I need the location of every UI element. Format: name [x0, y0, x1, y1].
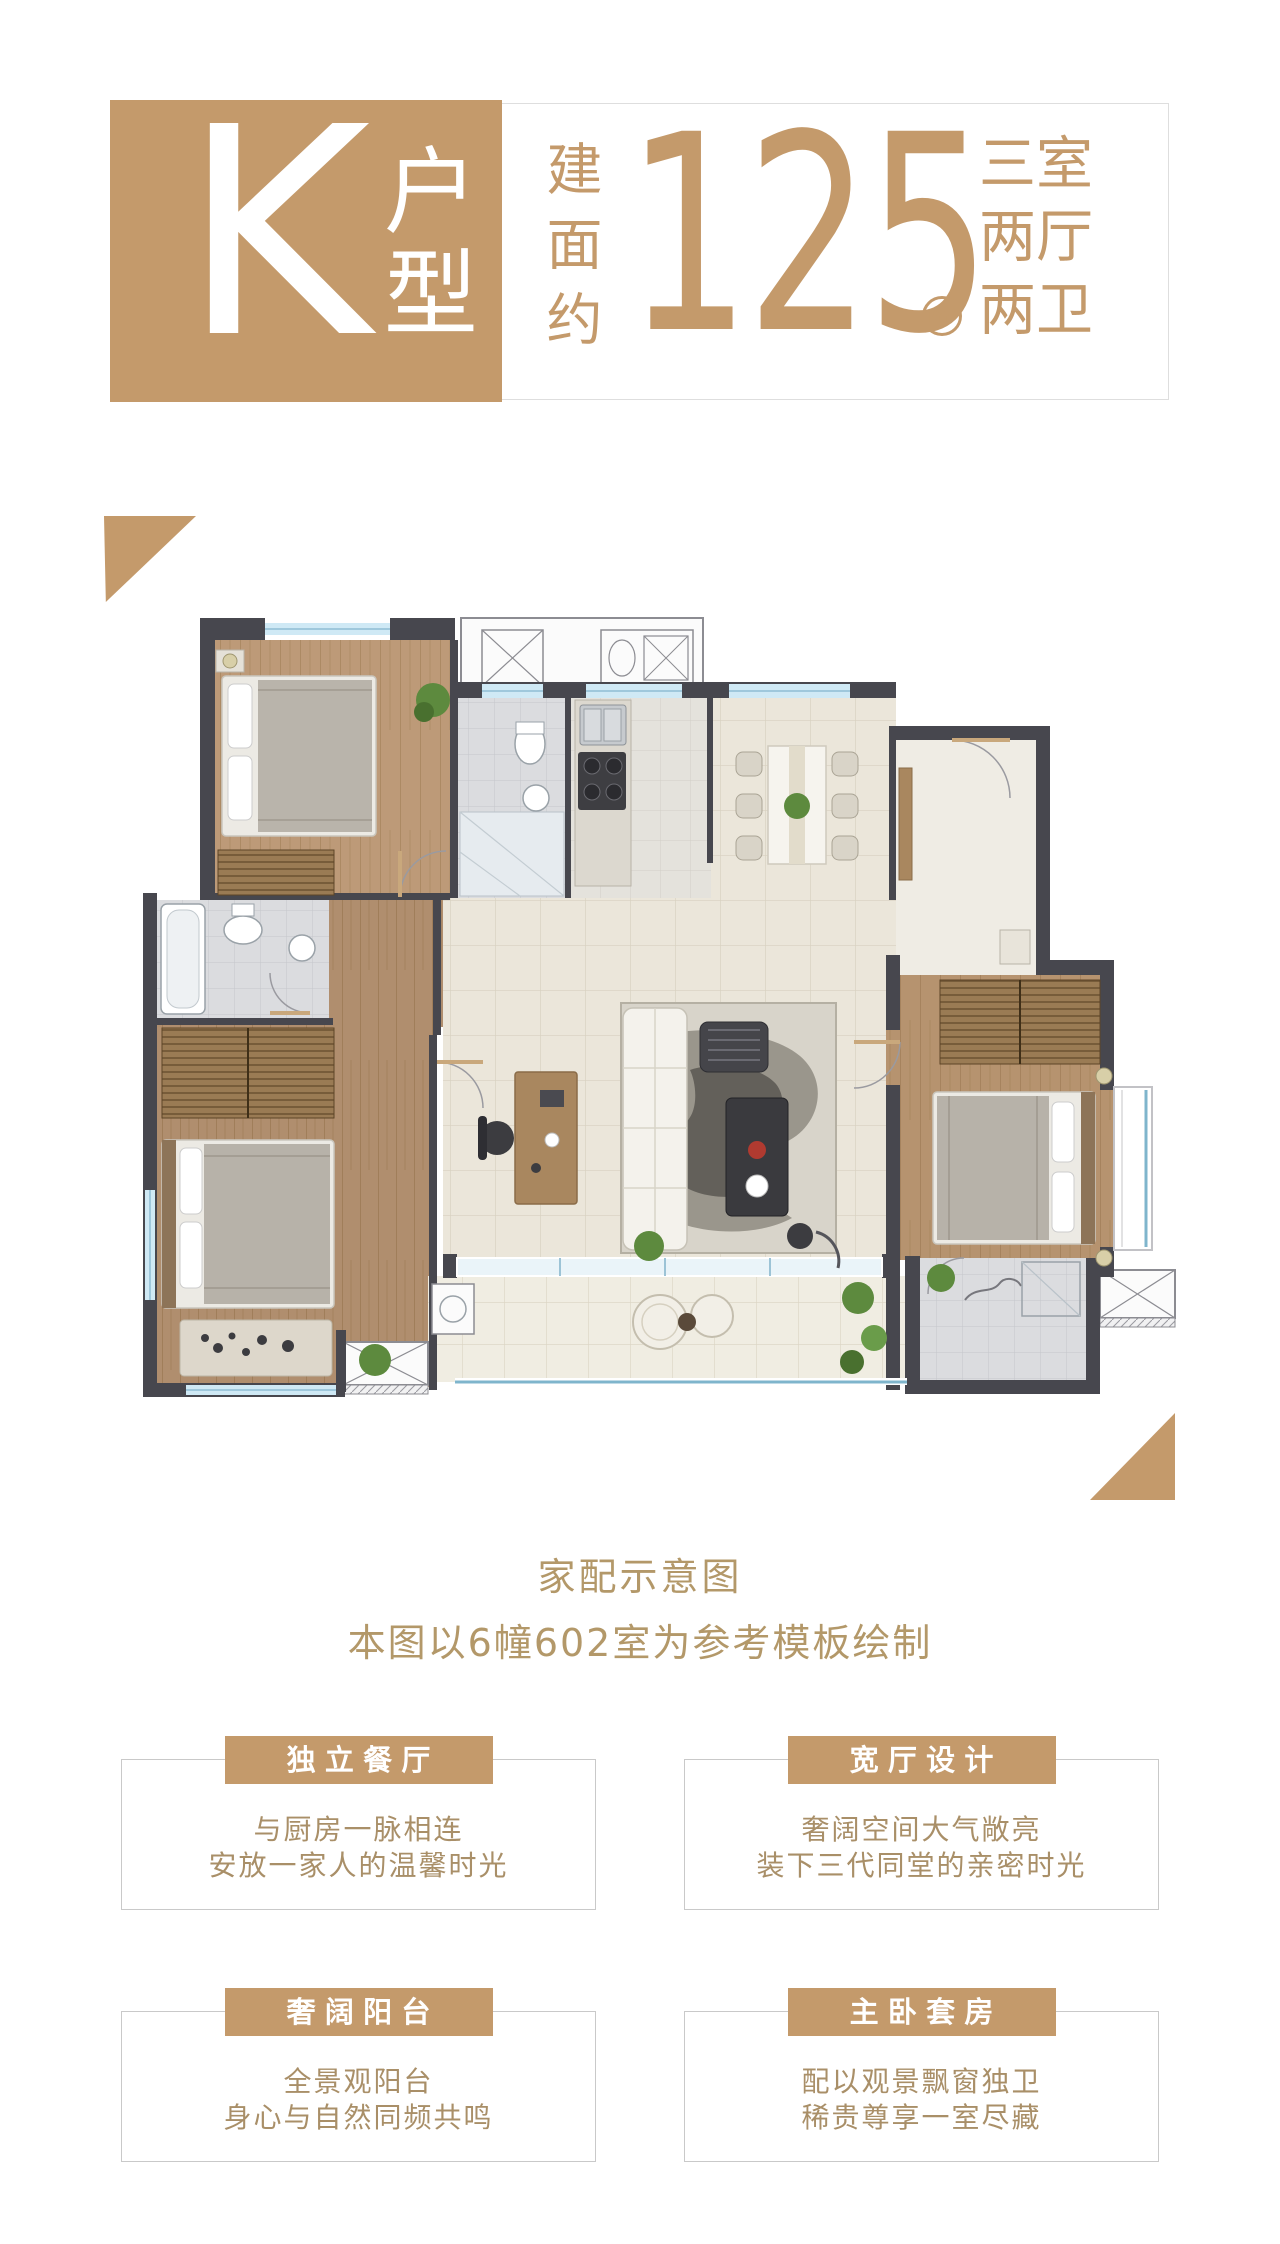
lamp [1096, 1068, 1112, 1084]
feature-line: 安放一家人的温馨时光 [122, 1848, 595, 1884]
room-count-block: 三室 两厅 两卫 [979, 136, 1117, 355]
plant [634, 1231, 664, 1261]
washer [432, 1284, 474, 1334]
pillow [1052, 1172, 1074, 1232]
baths-line: 两卫 [979, 282, 1117, 339]
living-room-furniture [621, 1003, 839, 1268]
kitchen-fixtures [575, 700, 631, 886]
plant [840, 1350, 864, 1374]
plan-caption-title: 家配示意图 [0, 1556, 1280, 1598]
rooms-line: 三室 [979, 136, 1117, 193]
master-bay-window [1114, 1087, 1152, 1250]
toilet [224, 916, 262, 944]
plan-caption-note: 本图以6幢602室为参考模板绘制 [0, 1621, 1280, 1665]
feature-title-bar: 奢阔阳台 [225, 1988, 493, 2036]
sink [523, 785, 549, 811]
rug [180, 1320, 332, 1376]
feature-box-hall: 宽厅设计 奢阔空间大气敞亮 装下三代同堂的亲密时光 [684, 1759, 1159, 1910]
pillow [228, 756, 252, 820]
plant [927, 1264, 955, 1292]
stool [787, 1223, 813, 1249]
feature-title-bar: 主卧套房 [788, 1988, 1056, 2036]
feature-box-balcony: 奢阔阳台 全景观阳台 身心与自然同频共鸣 [121, 2011, 596, 2162]
unit-letter: K [176, 84, 376, 384]
plant [842, 1282, 874, 1314]
pillow [228, 684, 252, 748]
bedroom3-bottom-window [186, 1385, 336, 1395]
shoe-cabinet [899, 768, 912, 880]
laptop [540, 1090, 564, 1107]
kitchen-windows [482, 684, 850, 698]
sink [289, 935, 315, 961]
bedroom2-window [265, 618, 390, 640]
balcony-railing [455, 1378, 907, 1385]
plant [861, 1325, 887, 1351]
bedroom3-side-window [145, 1190, 155, 1300]
wardrobe [218, 850, 334, 895]
dining-set [736, 746, 858, 864]
plant [359, 1344, 391, 1376]
centerpiece-plant [784, 793, 810, 819]
feature-line: 与厨房一脉相连 [122, 1812, 595, 1848]
feature-line: 配以观景飘窗独卫 [685, 2064, 1158, 2100]
halls-line: 两厅 [979, 209, 1117, 266]
blanket [258, 680, 372, 832]
pillow [180, 1222, 202, 1288]
floor-plan [140, 610, 1180, 1590]
hallway-floor [329, 895, 443, 1027]
unit-type-label: 户型 [374, 142, 470, 346]
feature-line: 全景观阳台 [122, 2064, 595, 2100]
lamp [1096, 1250, 1112, 1266]
pillow [1052, 1102, 1074, 1162]
pillow [180, 1148, 202, 1214]
feature-line: 奢阔空间大气敞亮 [685, 1812, 1158, 1848]
triangle-decoration-top-left [104, 516, 196, 602]
blanket [204, 1144, 330, 1304]
feature-title-bar: 独立餐厅 [225, 1736, 493, 1784]
square-meter-badge: m² [922, 296, 962, 336]
area-prefix: 建面约 [541, 140, 597, 365]
feature-line: 稀贵尊享一室尽藏 [685, 2100, 1158, 2136]
feature-title-bar: 宽厅设计 [788, 1736, 1056, 1784]
page: { "accent_color": "#c49a6b", "header": {… [0, 0, 1280, 2244]
feature-line: 身心与自然同频共鸣 [122, 2100, 595, 2136]
feature-box-dining: 独立餐厅 与厨房一脉相连 安放一家人的温馨时光 [121, 1759, 596, 1910]
blanket [937, 1096, 1049, 1240]
tray [678, 1313, 696, 1331]
balcony-door-band [457, 1258, 882, 1276]
bowl [748, 1141, 766, 1159]
round-table [691, 1295, 733, 1337]
master-bedroom-furniture [933, 980, 1112, 1266]
feature-box-master: 主卧套房 配以观景飘窗独卫 稀贵尊享一室尽藏 [684, 2011, 1159, 2162]
feature-line: 装下三代同堂的亲密时光 [685, 1848, 1158, 1884]
